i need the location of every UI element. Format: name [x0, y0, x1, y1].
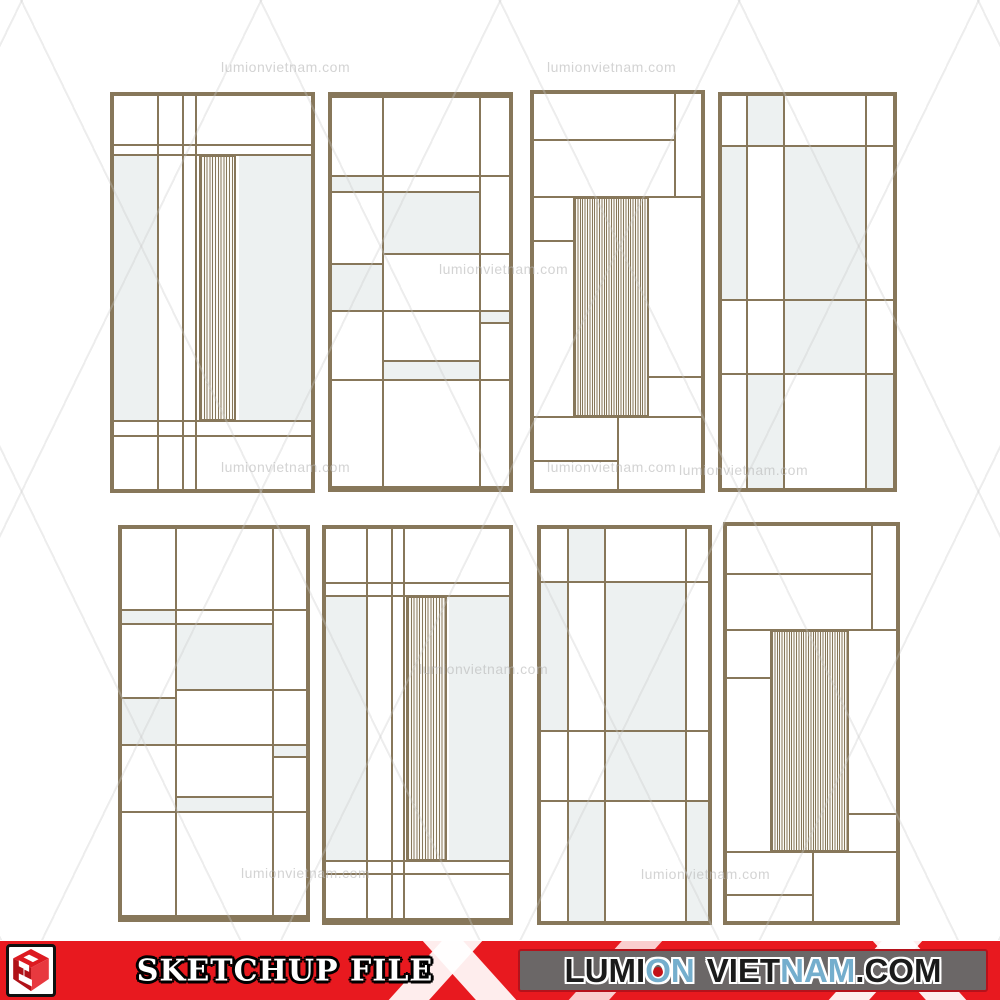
rail-line — [332, 175, 509, 177]
rail-line — [326, 595, 509, 597]
rail-line — [176, 689, 306, 691]
rail-line — [122, 609, 306, 611]
mullion-line — [382, 98, 384, 486]
mullion-line — [812, 852, 814, 921]
site-logo-letter: M — [828, 954, 856, 987]
rail-line — [326, 582, 509, 584]
rail-line — [727, 677, 770, 679]
site-logo: LUMION VIETNAM.COM — [518, 949, 988, 992]
rail-line — [122, 811, 306, 813]
rail-line — [114, 144, 311, 146]
mullion-line — [746, 96, 748, 488]
rail-line — [534, 139, 675, 141]
site-logo-letter: M — [914, 954, 942, 987]
glass-tint — [686, 801, 708, 921]
rail-line — [122, 697, 176, 699]
sketchup-file-label: SKETCHUP FILE — [110, 953, 460, 988]
site-logo-letter: N — [671, 954, 695, 987]
glass-tint — [747, 96, 784, 146]
glass-tint — [326, 596, 367, 861]
rail-line — [727, 894, 813, 896]
rail-line — [727, 573, 872, 575]
site-logo-letter: N — [780, 954, 804, 987]
glass-tint — [383, 192, 481, 254]
rail-line — [114, 420, 311, 422]
rail-line — [332, 379, 509, 381]
glass-tint — [568, 801, 606, 921]
rail-line — [534, 416, 701, 418]
watermark-text: lumionvietnam.com — [221, 459, 350, 475]
glass-tint — [784, 300, 866, 374]
site-logo-letter: O — [645, 954, 671, 987]
site-logo-letter: T — [760, 954, 780, 987]
rail-line — [541, 581, 708, 583]
glass-tint — [176, 624, 274, 690]
watermark-text: lumionvietnam.com — [241, 865, 370, 881]
slat-insert — [199, 155, 236, 421]
glass-tint — [114, 155, 158, 421]
rail-line — [383, 253, 509, 255]
glass-tint — [568, 529, 606, 582]
glass-tint — [239, 155, 311, 421]
rail-line — [176, 796, 274, 798]
product-preview-image: lumionvietnam.comlumionvietnam.comlumion… — [0, 0, 1000, 1000]
rail-line — [122, 744, 306, 746]
rail-line — [727, 851, 896, 853]
mullion-line — [272, 529, 274, 915]
sketchup-logo — [6, 944, 56, 997]
glass-tint — [866, 374, 893, 488]
glass-tint — [605, 731, 686, 801]
rail-line — [722, 145, 893, 147]
rail-line — [541, 730, 708, 732]
glass-tint — [122, 610, 176, 624]
glass-tint — [449, 596, 509, 861]
site-logo-letter: A — [804, 954, 828, 987]
rail-line — [114, 435, 311, 437]
mullion-line — [617, 417, 619, 489]
mullion-line — [175, 529, 177, 915]
glass-tint — [784, 146, 866, 300]
mullion-line — [479, 98, 481, 486]
glass-tint — [332, 264, 383, 311]
rail-line — [122, 623, 273, 625]
site-logo-letter: M — [609, 954, 637, 987]
rail-line — [649, 376, 701, 378]
watermark-text: lumionvietnam.com — [547, 59, 676, 75]
rail-line — [480, 322, 509, 324]
mullion-line — [604, 529, 606, 921]
slat-insert — [406, 596, 447, 861]
site-logo-letter: I — [636, 954, 645, 987]
glass-tint — [332, 176, 383, 192]
glass-tint — [122, 698, 176, 744]
panel-8 — [723, 522, 900, 925]
panel-5 — [118, 525, 310, 922]
panel-4 — [718, 92, 897, 492]
site-logo-letter: V — [707, 954, 729, 987]
rail-line — [326, 860, 509, 862]
site-logo-text: LUMION VIETNAM.COM — [565, 954, 942, 987]
rail-line — [722, 299, 893, 301]
rail-line — [332, 191, 480, 193]
slat-insert — [770, 630, 849, 852]
watermark-text: lumionvietnam.com — [679, 462, 808, 478]
panel-3 — [530, 90, 705, 493]
glass-tint — [722, 146, 747, 300]
site-logo-letter: I — [729, 954, 738, 987]
panel-7 — [537, 525, 712, 925]
site-logo-letter: U — [585, 954, 609, 987]
rail-line — [332, 263, 383, 265]
watermark-text: lumionvietnam.com — [547, 459, 676, 475]
slat-insert — [573, 197, 649, 417]
rail-line — [849, 813, 896, 815]
site-logo-letter: E — [738, 954, 760, 987]
mullion-line — [567, 529, 569, 921]
site-logo-letter: L — [565, 954, 585, 987]
footer-banner: SKETCHUP FILE LUMION VIETNAM.COM — [0, 941, 1000, 1000]
rail-line — [332, 310, 509, 312]
site-logo-letter — [695, 954, 707, 987]
panel-1 — [110, 92, 315, 493]
mullion-line — [871, 526, 873, 630]
mullion-line — [783, 96, 785, 488]
mullion-line — [685, 529, 687, 921]
rail-line — [722, 373, 893, 375]
watermark-text: lumionvietnam.com — [641, 866, 770, 882]
rail-line — [534, 196, 701, 198]
watermark-text: lumionvietnam.com — [439, 261, 568, 277]
site-logo-letter: O — [888, 954, 914, 987]
rail-line — [541, 800, 708, 802]
watermark-text: lumionvietnam.com — [221, 59, 350, 75]
mullion-line — [674, 94, 676, 197]
rail-line — [114, 154, 311, 156]
rail-line — [534, 240, 573, 242]
site-logo-letter: C — [864, 954, 888, 987]
rail-line — [727, 629, 896, 631]
glass-tint — [605, 582, 686, 732]
sketchup-cube-icon — [9, 948, 53, 993]
watermark-text: lumionvietnam.com — [419, 661, 548, 677]
glass-tint — [176, 797, 274, 812]
rail-line — [383, 360, 481, 362]
mullion-line — [865, 96, 867, 488]
rail-line — [273, 756, 306, 758]
panel-2 — [328, 92, 513, 492]
glass-tint — [383, 361, 481, 380]
glass-tint — [541, 582, 568, 732]
